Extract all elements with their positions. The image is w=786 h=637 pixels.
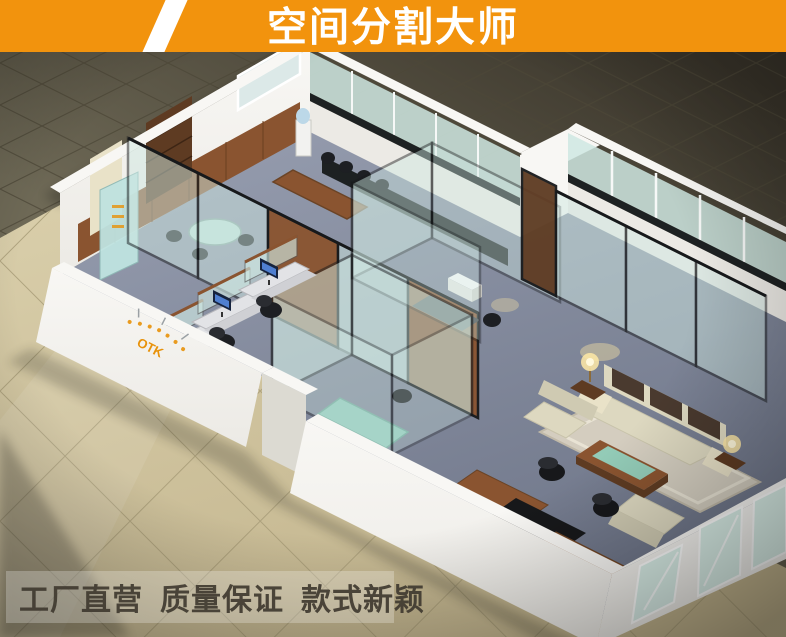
vignette-overlay [0, 50, 786, 637]
diagonal-slash-decoration [142, 0, 187, 52]
footer-tagline: 工厂直营 质量保证 款式新颖 [6, 571, 394, 623]
office-render: OTK [0, 0, 786, 637]
title-banner: 空间分割大师 [0, 0, 786, 52]
promo-image: OTK 空间分割大师 工 [0, 0, 786, 637]
tagline-factory-direct: 工厂直营 [19, 575, 143, 619]
tagline-style: 款式新颖 [301, 575, 425, 619]
tagline-quality: 质量保证 [160, 575, 284, 619]
banner-title: 空间分割大师 [267, 0, 519, 53]
